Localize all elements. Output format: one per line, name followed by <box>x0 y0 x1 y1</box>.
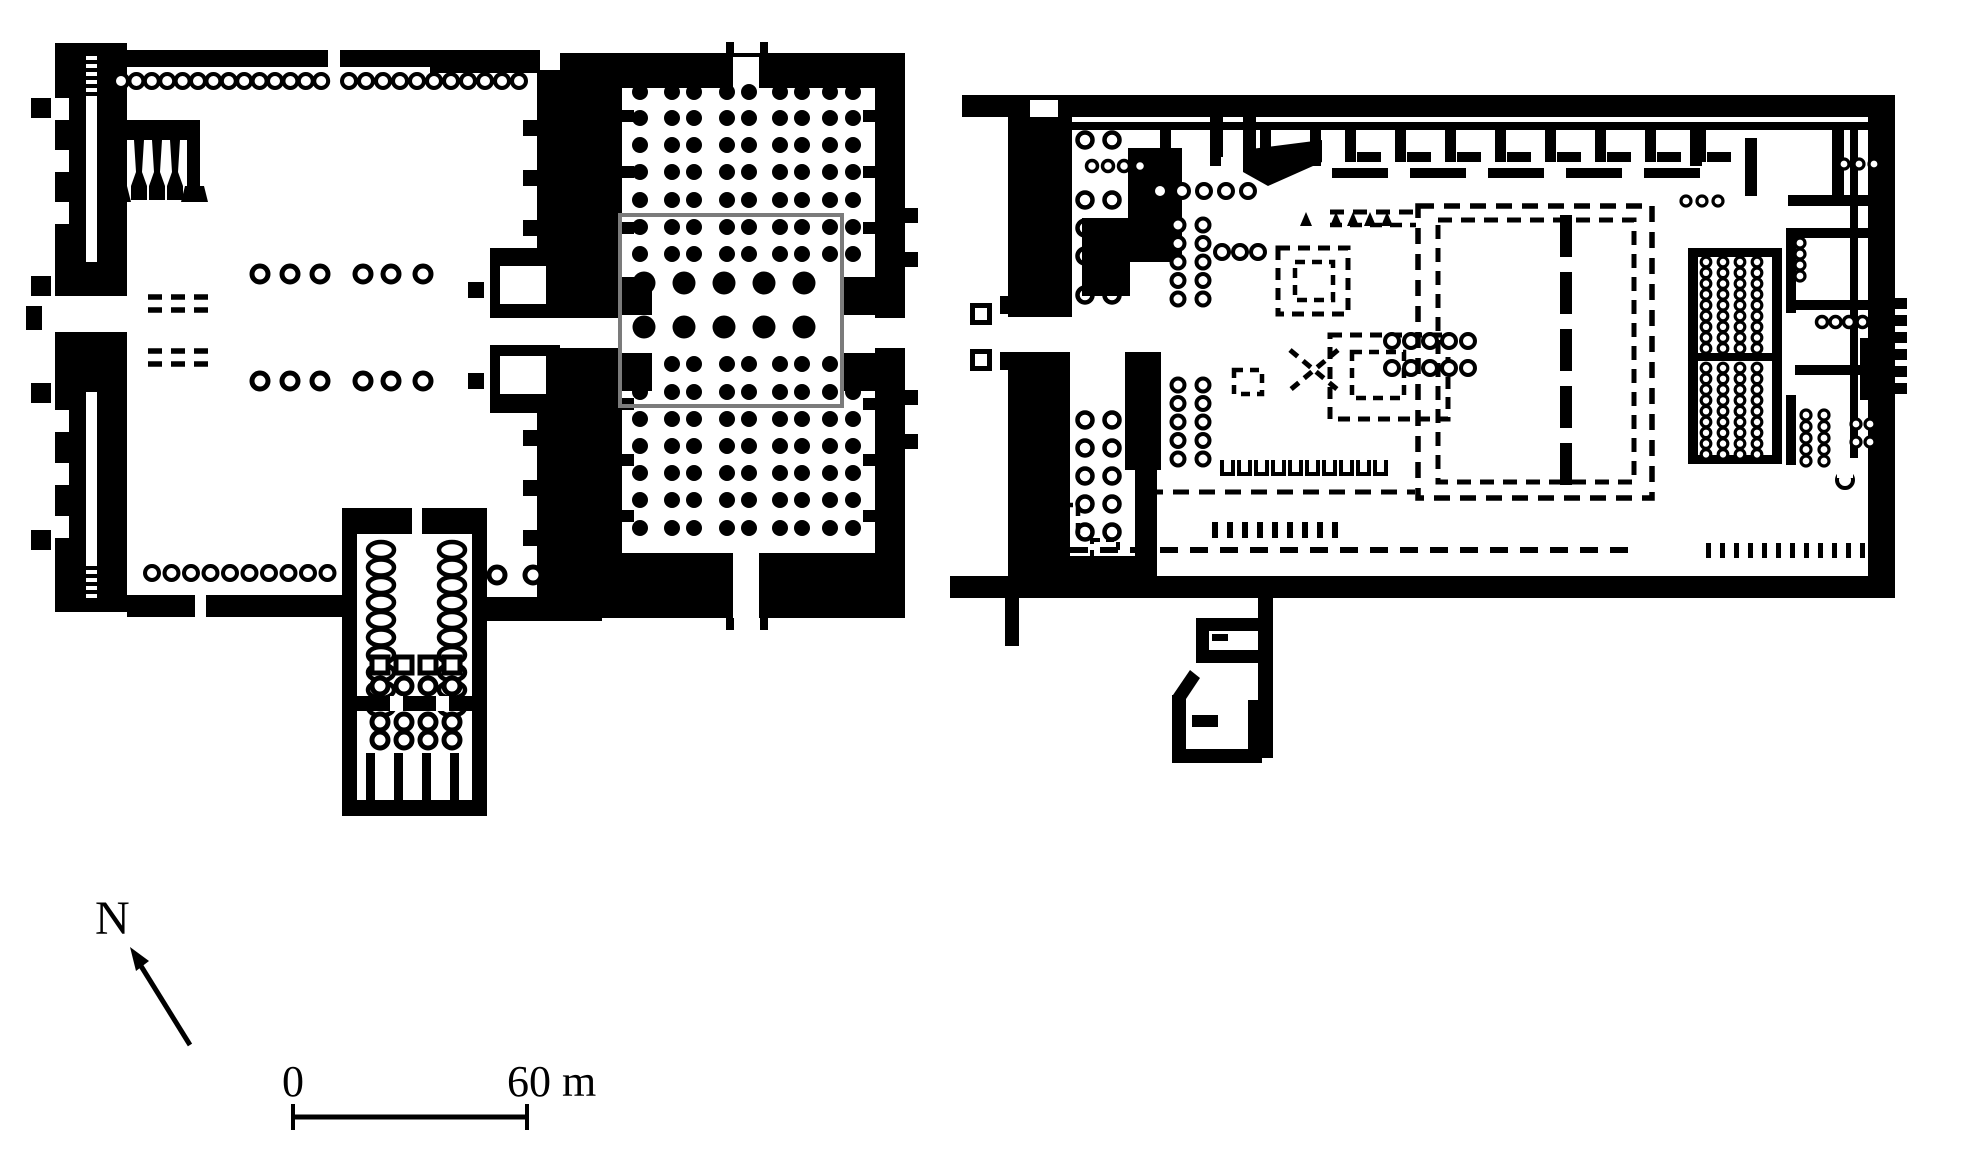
court-kiosk <box>104 120 208 202</box>
temple-plan-figure: N 0 60 m <box>0 0 1972 1159</box>
north-label: N <box>95 892 130 945</box>
plan-canvas: N 0 60 m <box>0 0 1972 1159</box>
scale-zero-label: 0 <box>282 1057 304 1106</box>
scale-end-label: 60 m <box>507 1057 596 1106</box>
